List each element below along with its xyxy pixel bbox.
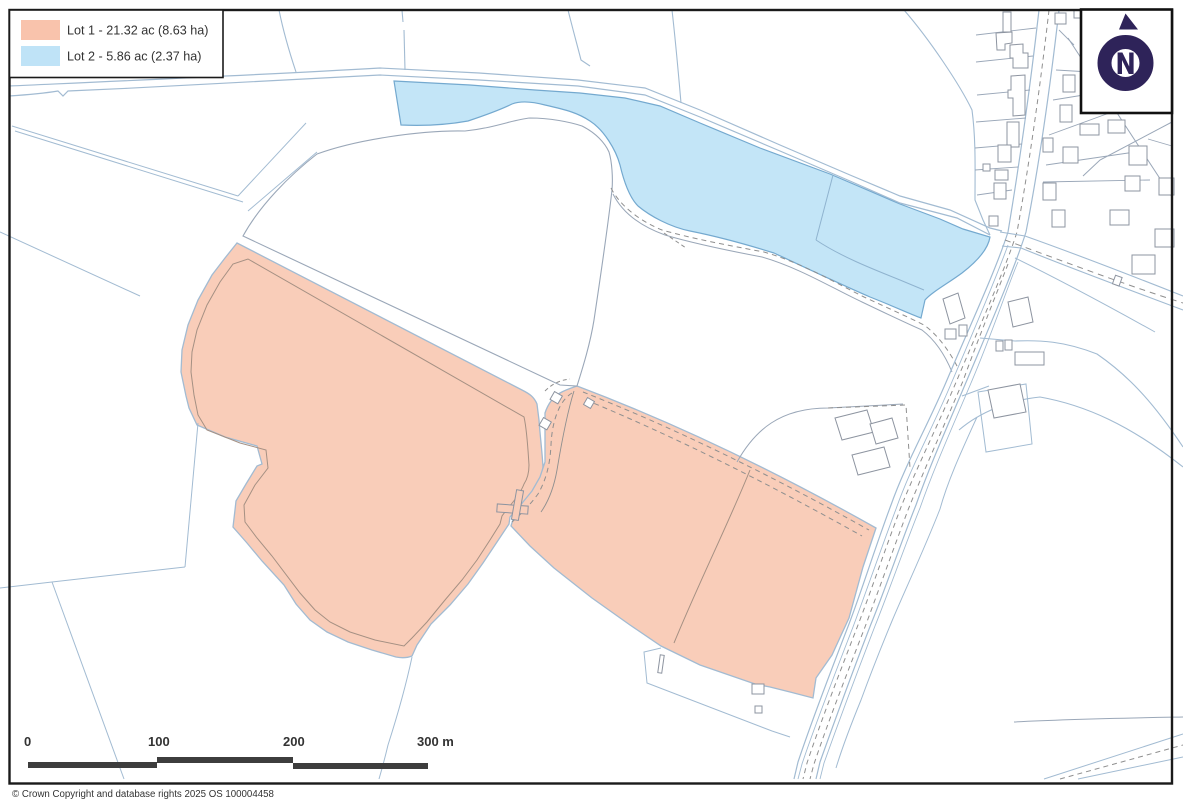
svg-text:100: 100 <box>148 734 170 749</box>
svg-text:300 m: 300 m <box>417 734 454 749</box>
svg-text:Lot 1 - 21.32 ac (8.63 ha): Lot 1 - 21.32 ac (8.63 ha) <box>67 24 208 38</box>
svg-text:Lot 2 - 5.86 ac (2.37 ha): Lot 2 - 5.86 ac (2.37 ha) <box>67 50 201 64</box>
svg-text:200: 200 <box>283 734 305 749</box>
svg-text:0: 0 <box>24 734 31 749</box>
svg-text:© Crown Copyright and database: © Crown Copyright and database rights 20… <box>12 789 274 800</box>
